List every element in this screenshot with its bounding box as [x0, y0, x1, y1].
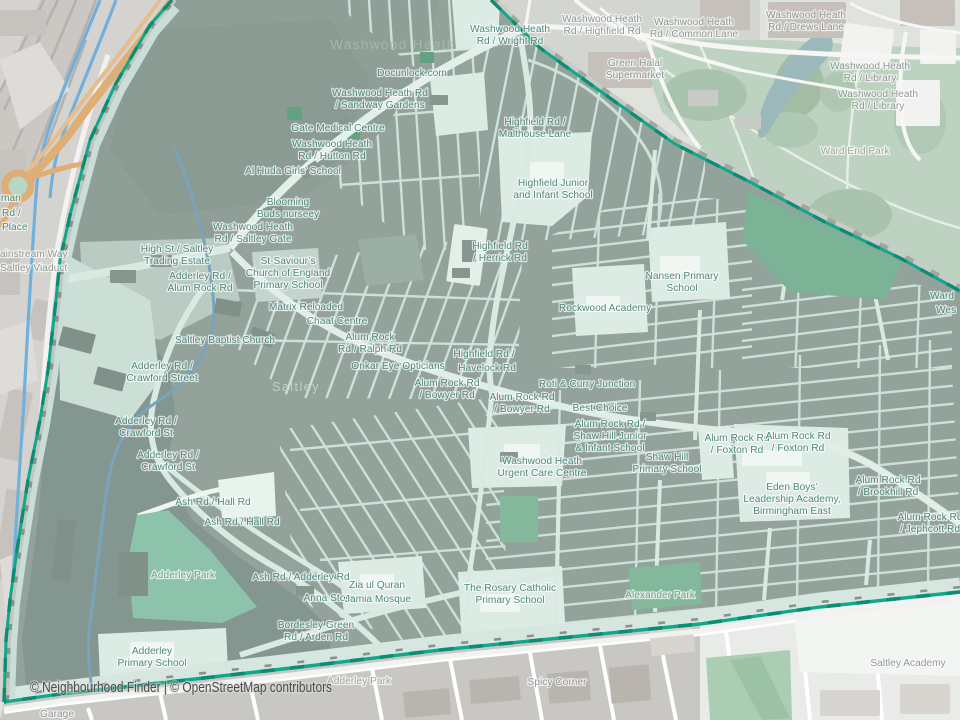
svg-text:Blooming: Blooming	[267, 197, 310, 208]
svg-text:Gate Medical Centre: Gate Medical Centre	[291, 123, 385, 134]
svg-text:Primary School: Primary School	[117, 658, 186, 669]
svg-text:St-Saviour’s: St-Saviour’s	[260, 256, 315, 267]
svg-text:Washwood Heath: Washwood Heath	[330, 37, 456, 52]
svg-text:Bordesley Green: Bordesley Green	[278, 620, 354, 631]
svg-text:Highfield Rd /: Highfield Rd /	[453, 349, 514, 360]
svg-text:Adderley Rd /: Adderley Rd /	[115, 416, 177, 427]
svg-text:Washwood Heath: Washwood Heath	[213, 222, 293, 233]
svg-text:Alum Rock Rd: Alum Rock Rd	[765, 431, 830, 442]
svg-text:Place: Place	[2, 222, 28, 233]
svg-text:Rd / Saltley Gate: Rd / Saltley Gate	[214, 234, 291, 245]
svg-text:Washwood Heath: Washwood Heath	[654, 17, 734, 28]
svg-text:/ Brookhill Rd: / Brookhill Rd	[858, 487, 919, 498]
svg-text:Buds nurseey: Buds nurseey	[257, 209, 320, 220]
svg-text:Best Choice: Best Choice	[573, 403, 628, 414]
svg-text:/ Jephcott Rd: / Jephcott Rd	[900, 524, 960, 535]
svg-text:Zia ul Quran: Zia ul Quran	[349, 580, 405, 591]
svg-text:/ Foxton Rd: / Foxton Rd	[711, 445, 764, 456]
svg-text:Rd /: Rd /	[2, 208, 21, 219]
svg-text:man: man	[1, 193, 21, 204]
svg-text:Ward: Ward	[930, 291, 954, 302]
svg-text:Rd / Common Lane: Rd / Common Lane	[650, 29, 739, 40]
svg-text:Adderley Rd /: Adderley Rd /	[137, 450, 199, 461]
svg-text:Adderley: Adderley	[132, 646, 173, 657]
svg-text:Washwood Heath: Washwood Heath	[470, 24, 550, 35]
svg-text:Saltley Viaduct: Saltley Viaduct	[0, 263, 67, 274]
svg-text:Birmingham East: Birmingham East	[753, 506, 831, 517]
svg-text:Washwood Heath: Washwood Heath	[766, 10, 846, 21]
svg-text:Ash Rd / Hall Rd: Ash Rd / Hall Rd	[175, 497, 251, 508]
svg-text:Rd / Hutton Rd: Rd / Hutton Rd	[298, 151, 366, 162]
svg-text:Adderley Rd /: Adderley Rd /	[169, 271, 231, 282]
svg-text:Highfield Rd /: Highfield Rd /	[504, 117, 565, 128]
svg-text:Alum Rock Rd: Alum Rock Rd	[414, 378, 479, 389]
svg-text:Primary School: Primary School	[632, 464, 701, 475]
svg-text:Trading Estate: Trading Estate	[144, 256, 210, 267]
svg-text:Alexander Park: Alexander Park	[625, 590, 696, 601]
svg-text:Alum Rock: Alum Rock	[345, 332, 395, 343]
svg-text:Ward End Park: Ward End Park	[821, 146, 891, 157]
svg-text:Leadership Academy,: Leadership Academy,	[743, 494, 840, 505]
svg-text:/ Bowyer Rd: / Bowyer Rd	[494, 404, 550, 415]
svg-text:Crawford St: Crawford St	[141, 462, 195, 473]
svg-text:School: School	[666, 283, 697, 294]
svg-text:Washwood Heath: Washwood Heath	[502, 456, 582, 467]
svg-text:Ash Rd / Adderley Rd: Ash Rd / Adderley Rd	[252, 572, 350, 583]
svg-text:Rd / Drews Lane: Rd / Drews Lane	[768, 22, 844, 33]
svg-text:Shaw Hill Junior: Shaw Hill Junior	[573, 431, 647, 442]
svg-text:Chaat Centre: Chaat Centre	[307, 316, 368, 327]
svg-text:Wes: Wes	[936, 305, 956, 316]
svg-text:& Infant School: & Infant School	[575, 443, 644, 454]
svg-text:Rd / Arden Rd: Rd / Arden Rd	[284, 632, 348, 643]
svg-text:Alum Rock Rd /: Alum Rock Rd /	[575, 419, 646, 430]
svg-text:Onkar Eye Opticians: Onkar Eye Opticians	[351, 361, 444, 372]
svg-text:Saltley Baptist Church: Saltley Baptist Church	[175, 335, 275, 346]
svg-text:Jamia Mosque: Jamia Mosque	[345, 594, 412, 605]
svg-text:Church of England: Church of England	[246, 268, 331, 279]
svg-text:/ Foxton Rd: / Foxton Rd	[772, 443, 825, 454]
svg-text:Malthouse Lane: Malthouse Lane	[499, 129, 572, 140]
svg-text:High St / Saltley: High St / Saltley	[141, 244, 214, 255]
svg-text:The Rosary Catholic: The Rosary Catholic	[464, 583, 556, 594]
svg-text:Ash Rd / Hall Rd: Ash Rd / Hall Rd	[204, 517, 280, 528]
svg-text:Crawford Street: Crawford Street	[126, 373, 198, 384]
svg-text:Urgent Care Centre: Urgent Care Centre	[498, 468, 587, 479]
svg-text:Washwood Heath: Washwood Heath	[838, 89, 918, 100]
svg-text:and Infant School: and Infant School	[513, 190, 592, 201]
svg-text:Al Huda Girls’ School: Al Huda Girls’ School	[245, 166, 341, 177]
svg-text:ainstream Way: ainstream Way	[0, 249, 68, 260]
svg-text:Rd / Library: Rd / Library	[852, 101, 906, 112]
svg-text:Adderley Rd /: Adderley Rd /	[131, 361, 193, 372]
svg-text:Rd / Highfield Rd: Rd / Highfield Rd	[563, 26, 640, 37]
svg-text:Alum Rock Rd: Alum Rock Rd	[897, 512, 960, 523]
svg-text:Rd / Wright Rd: Rd / Wright Rd	[477, 36, 544, 47]
svg-text:Alum Rock Rd: Alum Rock Rd	[855, 475, 920, 486]
svg-text:Supermarket: Supermarket	[606, 70, 664, 81]
svg-text:Matrix Reloaded: Matrix Reloaded	[269, 302, 344, 313]
svg-text:/ Herrick Rd: / Herrick Rd	[473, 253, 527, 264]
svg-text:Docunlock.com: Docunlock.com	[377, 68, 447, 79]
svg-text:Saltley: Saltley	[272, 380, 320, 394]
svg-text:Adderley Park: Adderley Park	[151, 570, 216, 581]
svg-text:© Neighbourhood Finder | © Ope: © Neighbourhood Finder | © OpenStreetMap…	[30, 680, 332, 696]
svg-text:Primary School: Primary School	[475, 595, 544, 606]
svg-text:Washwood Heath: Washwood Heath	[292, 139, 372, 150]
svg-text:Washwood Heath: Washwood Heath	[830, 61, 910, 72]
svg-text:Adderley Park: Adderley Park	[327, 676, 392, 687]
svg-text:Primary School: Primary School	[253, 280, 322, 291]
svg-text:Spicy Corner: Spicy Corner	[528, 677, 587, 688]
svg-text:/ Bowyer Rd: / Bowyer Rd	[419, 390, 475, 401]
svg-text:Alum Rock Rd: Alum Rock Rd	[704, 433, 769, 444]
svg-text:Washwood Heath: Washwood Heath	[562, 14, 642, 25]
svg-text:Garage: Garage	[40, 709, 74, 720]
svg-text:Alum Rock Rd: Alum Rock Rd	[167, 283, 232, 294]
svg-text:Highfield Junior: Highfield Junior	[518, 178, 589, 189]
svg-text:Saltley Academy: Saltley Academy	[870, 658, 946, 669]
svg-text:Rd / Library: Rd / Library	[844, 73, 898, 84]
svg-text:Roti & Curry Junction: Roti & Curry Junction	[539, 379, 635, 390]
svg-text:Nansen Primary: Nansen Primary	[645, 271, 719, 282]
svg-text:Highfield Rd: Highfield Rd	[472, 241, 528, 252]
svg-text:Rd / Ralph Rd: Rd / Ralph Rd	[338, 344, 402, 355]
svg-text:Rockwood Academy: Rockwood Academy	[559, 303, 652, 314]
svg-text:Crawford St: Crawford St	[119, 428, 173, 439]
svg-text:Alum Rock Rd: Alum Rock Rd	[489, 392, 554, 403]
svg-text:Eden Boys’: Eden Boys’	[766, 482, 818, 493]
svg-text:Green Halal: Green Halal	[608, 58, 662, 69]
svg-text:/ Sandway Gardens: / Sandway Gardens	[335, 100, 424, 111]
svg-text:Washwood Heath Rd: Washwood Heath Rd	[332, 88, 428, 99]
svg-text:Shaw Hill: Shaw Hill	[646, 452, 688, 463]
svg-text:Havelock Rd: Havelock Rd	[458, 363, 516, 374]
